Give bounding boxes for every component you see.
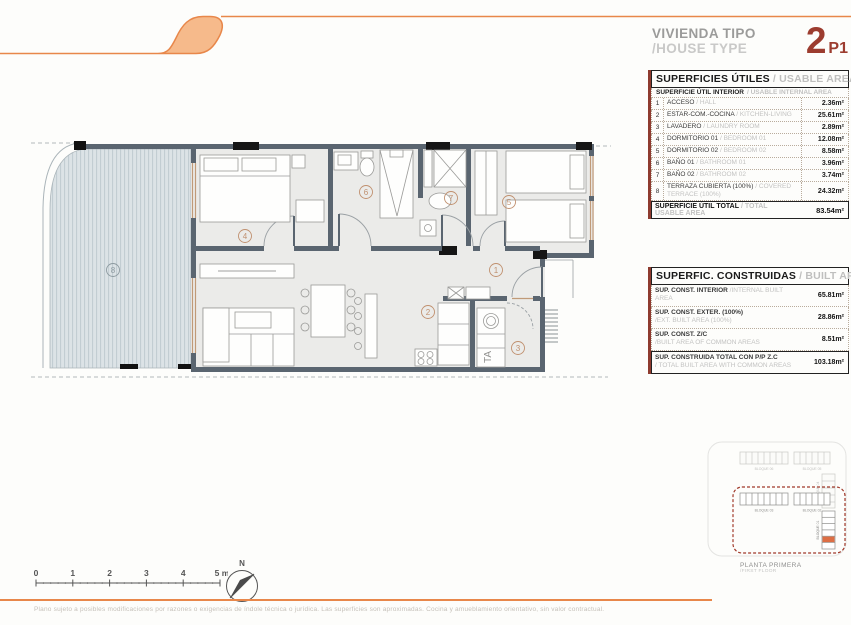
usable-total-label: SUPERFICIE ÚTIL TOTAL / TOTAL USABLE ARE… [652, 202, 800, 218]
table-row: 3 LAVADERO / LAUNDRY ROOM 2.89m² [651, 122, 849, 134]
svg-text:4: 4 [243, 232, 248, 241]
table-row: 5 DORMITORIO 02 / BEDROOM 02 8.58m² [651, 146, 849, 158]
svg-text:1: 1 [494, 266, 499, 275]
table-row: 1 ACCESO / HALL 2.36m² [651, 98, 849, 110]
floor-name-es: PLANTA PRIMERA [740, 562, 801, 569]
row-area: 24.32m² [801, 182, 848, 200]
row-name: ACCESO / HALL [664, 98, 801, 108]
row-name: TERRAZA CUBIERTA (100%) / COVERED TERRAC… [664, 182, 801, 200]
usable-area-table: SUPERFICIES ÚTILES / USABLE AREA SUPERFI… [648, 70, 849, 219]
row-name-es: ACCESO [667, 99, 694, 106]
row-num: 3 [652, 122, 664, 133]
dresser [296, 200, 324, 222]
stairs [545, 310, 558, 342]
built-total-en: / TOTAL BUILT AREA WITH COMMON AREAS [655, 362, 791, 369]
footer-rule [0, 599, 712, 601]
svg-text:8: 8 [111, 266, 116, 275]
usable-total-value: 83.54m² [800, 206, 848, 215]
table-row: SUP. CONST. Z/C/BUILT AREA OF COMMON ARE… [651, 329, 849, 351]
row-label-en: /EXT. BUILT AREA (100%) [655, 317, 732, 324]
row-label-es: SUP. CONST. INTERIOR [655, 287, 728, 294]
row-name-en: / BATHROOM 02 [696, 171, 746, 178]
row-num: 4 [652, 134, 664, 145]
row-name-en: / BEDROOM 01 [720, 135, 766, 142]
row-label: SUP. CONST. Z/C/BUILT AREA OF COMMON ARE… [652, 331, 800, 348]
floor-name-en: /FIRST FLOOR [740, 569, 801, 574]
svg-text:4: 4 [181, 568, 186, 578]
row-name: BAÑO 01 / BATHROOM 01 [664, 158, 801, 168]
row-name-en: / BATHROOM 01 [696, 159, 746, 166]
svg-text:0: 0 [34, 568, 39, 578]
row-label: SUP. CONST. INTERIOR /INTERNAL BUILT ARE… [652, 287, 800, 304]
row-value: 28.86m² [800, 314, 848, 321]
toilet-tank [361, 151, 373, 158]
svg-text:1: 1 [70, 568, 75, 578]
row-label-es: SUP. CONST. Z/C [655, 331, 707, 338]
table-row: 7 BAÑO 02 / BATHROOM 02 3.74m² [651, 170, 849, 182]
unit-floor: P1 [828, 40, 848, 58]
svg-text:2: 2 [107, 568, 112, 578]
built-title-en: / BUILT AREA [799, 270, 851, 282]
row-label-en: /BUILT AREA OF COMMON AREAS [655, 339, 760, 346]
row-num: 1 [652, 98, 664, 109]
row-area: 25.61m² [801, 110, 848, 121]
row-name-es: TERRAZA CUBIERTA (100%) [667, 183, 753, 190]
active-blocks [740, 493, 835, 549]
row-num: 7 [652, 170, 664, 181]
row-name: LAVADERO / LAUNDRY ROOM [664, 122, 801, 132]
scale-bar: 0 1 2 3 4 5 m [28, 566, 228, 594]
unit-id: 2 P1 [770, 22, 848, 59]
table-row: 4 DORMITORIO 01 / BEDROOM 01 12.08m² [651, 134, 849, 146]
row-name-es: DORMITORIO 01 [667, 135, 718, 142]
row-num: 2 [652, 110, 664, 121]
table-row: SUP. CONST. EXTER. (100%)/EXT. BUILT ARE… [651, 307, 849, 329]
row-value: 8.51m² [800, 336, 848, 343]
north-label: N [239, 559, 245, 568]
header: VIVIENDA TIPO /HOUSE TYPE [652, 26, 756, 56]
sink [429, 193, 451, 209]
table-row: 2 ESTAR-COM.-COCINA / KITCHEN-LIVING 25.… [651, 110, 849, 122]
house-type-title-en: /HOUSE TYPE [652, 41, 756, 56]
built-total-row: SUP. CONSTRUIDA TOTAL CON P/P Z.C/ TOTAL… [651, 351, 849, 374]
water-heater-label: TA [483, 351, 494, 363]
built-table-header: SUPERFIC. CONSTRUIDAS / BUILT AREA [651, 267, 849, 285]
row-name-en: / BEDROOM 02 [720, 147, 766, 154]
built-total-label: SUP. CONSTRUIDA TOTAL CON P/P Z.C/ TOTAL… [652, 354, 800, 371]
block-label: BLOQUE 03 [755, 509, 774, 513]
key-plan-caption: PLANTA PRIMERA /FIRST FLOOR [740, 562, 801, 574]
svg-text:3: 3 [144, 568, 149, 578]
highlighted-unit [823, 537, 835, 543]
usable-title-en: / USABLE AREA [773, 73, 851, 85]
svg-text:7: 7 [449, 194, 454, 203]
entry-landing [545, 260, 573, 298]
toilet [360, 158, 374, 176]
floor-plan: TA 1 2 3 4 5 [28, 138, 613, 390]
row-area: 3.74m² [801, 170, 848, 181]
row-name: DORMITORIO 02 / BEDROOM 02 [664, 146, 801, 156]
usable-table-header: SUPERFICIES ÚTILES / USABLE AREA [651, 70, 849, 88]
table-row: 6 BAÑO 01 / BATHROOM 01 3.96m² [651, 158, 849, 170]
row-name-en: / LAUNDRY ROOM [703, 123, 759, 130]
built-total-value: 103.18m² [800, 359, 848, 366]
faded-block-label: BLOQUE 05 [803, 467, 822, 471]
scale-labels: 0 1 2 3 4 5 m [34, 568, 228, 578]
usable-subheader-en: / USABLE INTERNAL AREA [747, 89, 832, 96]
svg-text:6: 6 [364, 188, 369, 197]
usable-subheader-es: SUPERFICIE ÚTIL INTERIOR [656, 89, 744, 96]
table-row: 8 TERRAZA CUBIERTA (100%) / COVERED TERR… [651, 182, 849, 201]
svg-text:3: 3 [516, 344, 521, 353]
built-total-es: SUP. CONSTRUIDA TOTAL CON P/P Z.C [655, 354, 778, 361]
row-num: 6 [652, 158, 664, 169]
row-name-en: / HALL [696, 99, 716, 106]
row-area: 8.58m² [801, 146, 848, 157]
terrace [43, 141, 191, 369]
row-name-es: BAÑO 02 [667, 171, 694, 178]
kitchen-island [365, 294, 377, 358]
row-area: 2.89m² [801, 122, 848, 133]
dining-table [311, 285, 345, 337]
usable-title-es: SUPERFICIES ÚTILES [656, 73, 770, 85]
usable-table-subheader: SUPERFICIE ÚTIL INTERIOR / USABLE INTERN… [651, 88, 849, 98]
usable-total-es: SUPERFICIE ÚTIL TOTAL [655, 203, 739, 210]
usable-total-row: SUPERFICIE ÚTIL TOTAL / TOTAL USABLE ARE… [651, 201, 849, 219]
block-label: BLOQUE 01 [816, 520, 820, 539]
nightstand [292, 155, 305, 168]
built-area-table: SUPERFIC. CONSTRUIDAS / BUILT AREA SUP. … [648, 267, 849, 374]
row-num: 8 [652, 182, 664, 200]
house-type-title-es: VIVIENDA TIPO [652, 26, 756, 41]
unit-number: 2 [806, 22, 827, 59]
row-label: SUP. CONST. EXTER. (100%)/EXT. BUILT ARE… [652, 309, 800, 326]
disclaimer-text: Plano sujeto a posibles modificaciones p… [34, 606, 724, 613]
row-area: 12.08m² [801, 134, 848, 145]
row-area: 3.96m² [801, 158, 848, 169]
row-name-es: BAÑO 01 [667, 159, 694, 166]
row-name-es: LAVADERO [667, 123, 701, 130]
row-name-es: ESTAR-COM.-COCINA [667, 111, 734, 118]
row-num: 5 [652, 146, 664, 157]
svg-text:5: 5 [507, 198, 512, 207]
row-name-es: DORMITORIO 02 [667, 147, 718, 154]
row-name: BAÑO 02 / BATHROOM 02 [664, 170, 801, 180]
svg-text:2: 2 [426, 308, 431, 317]
row-name: DORMITORIO 01 / BEDROOM 01 [664, 134, 801, 144]
built-title-es: SUPERFIC. CONSTRUIDAS [656, 270, 796, 282]
row-name-en: / KITCHEN-LIVING [736, 111, 792, 118]
row-label-es: SUP. CONST. EXTER. (100%) [655, 309, 743, 316]
block-label: BLOQUE 02 [803, 509, 822, 513]
faded-block-label: BLOQUE 06 [755, 467, 774, 471]
row-area: 2.36m² [801, 98, 848, 109]
shower [380, 150, 413, 218]
row-name: ESTAR-COM.-COCINA / KITCHEN-LIVING [664, 110, 801, 120]
kitchen-counter [438, 303, 469, 365]
table-row: SUP. CONST. INTERIOR /INTERNAL BUILT ARE… [651, 285, 849, 307]
plan-sheet: VIVIENDA TIPO /HOUSE TYPE 2 P1 SUPERFICI… [0, 0, 851, 625]
row-value: 65.81m² [800, 292, 848, 299]
logo-shape [158, 17, 222, 54]
